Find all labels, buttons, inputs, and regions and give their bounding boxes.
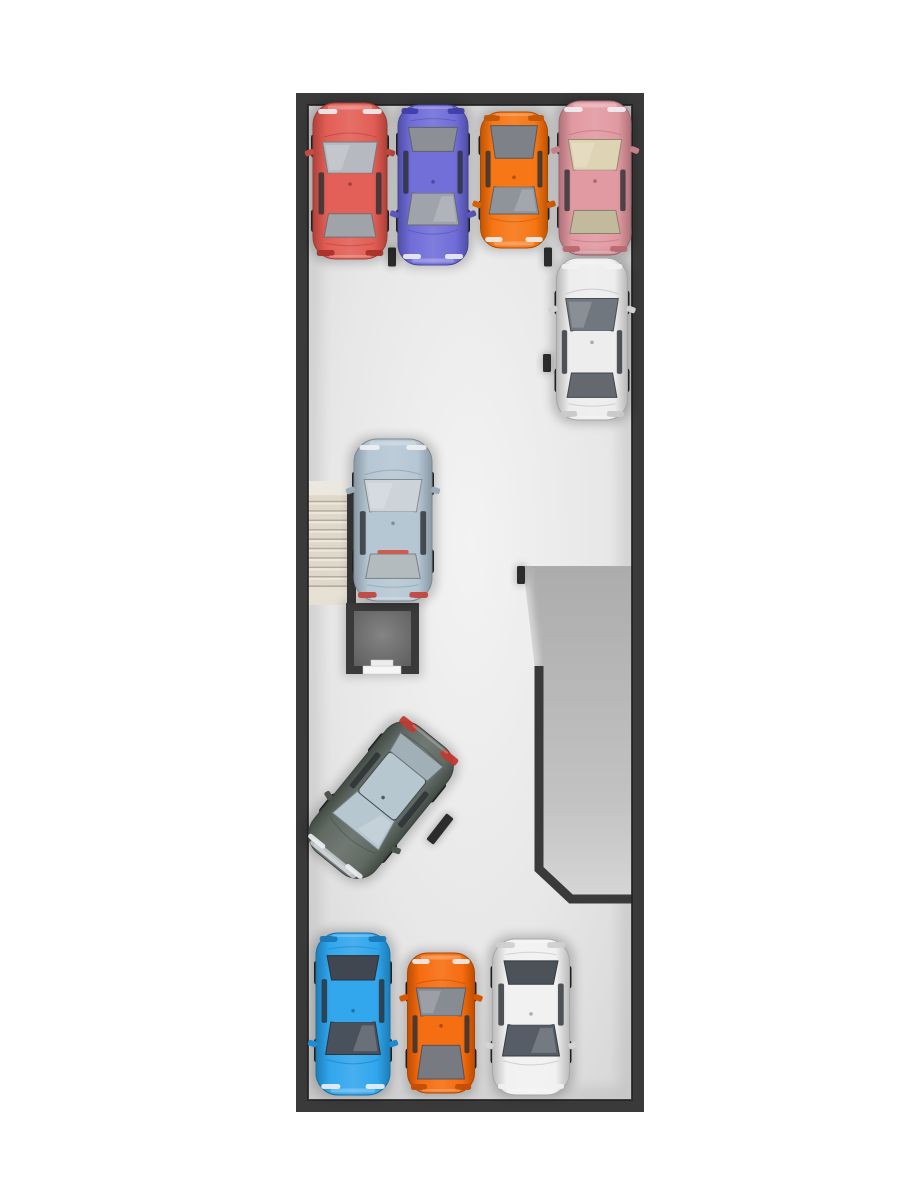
car-headlight-right bbox=[498, 1084, 518, 1089]
car-headlight-right bbox=[403, 254, 421, 259]
car-rear-window bbox=[418, 1045, 465, 1079]
car-headlight-left bbox=[561, 264, 579, 269]
car-antenna bbox=[351, 1009, 355, 1013]
elevator-door-step bbox=[371, 660, 393, 666]
elevator-wall-right bbox=[411, 603, 419, 674]
car-rear-sheen bbox=[575, 251, 615, 254]
car-side-glass-right bbox=[620, 170, 625, 212]
car-side-glass-left bbox=[558, 983, 564, 1025]
car-front-sheen bbox=[421, 956, 461, 960]
car-roof bbox=[412, 151, 454, 193]
wheel-stop-body bbox=[543, 354, 551, 372]
car-roof bbox=[573, 170, 616, 210]
stairs-texture bbox=[308, 481, 347, 605]
car-rear-sheen bbox=[422, 1089, 460, 1092]
car-headlight-left bbox=[359, 445, 379, 450]
car-sedan-pink bbox=[550, 98, 640, 259]
car-sedan-steelblue bbox=[345, 436, 441, 605]
car-side-glass-left bbox=[379, 979, 385, 1023]
car-headlight-left bbox=[412, 959, 429, 964]
car-front-sheen bbox=[328, 106, 372, 110]
elevator-wall-left bbox=[346, 603, 354, 674]
car-antenna bbox=[439, 1024, 443, 1028]
elevator-door-sill bbox=[363, 666, 401, 674]
car-rear-window bbox=[366, 554, 421, 578]
car-headlight-left bbox=[564, 107, 583, 112]
wheel-stop-body bbox=[517, 566, 525, 584]
car-roof bbox=[421, 1016, 461, 1045]
car-sedan-white-bottom bbox=[484, 935, 579, 1098]
car-side-glass-left bbox=[458, 151, 463, 194]
car-hatch-orange bbox=[399, 950, 484, 1097]
car-rear-sheen bbox=[413, 107, 452, 110]
car-front-sheen bbox=[508, 1089, 554, 1093]
car-antenna bbox=[590, 340, 594, 344]
car-headlight-left bbox=[544, 1084, 564, 1089]
car-side-glass-right bbox=[403, 151, 408, 194]
car-side-glass-left bbox=[360, 511, 366, 555]
car-rear-sheen bbox=[509, 941, 552, 944]
car-rear-sheen bbox=[572, 416, 612, 419]
car-headlight-right bbox=[452, 959, 469, 964]
car-side-glass-left bbox=[413, 1015, 418, 1053]
car-headlight-right bbox=[607, 107, 626, 112]
car-roof bbox=[328, 173, 372, 214]
car-front-sheen bbox=[331, 1089, 375, 1093]
car-headlight-left bbox=[318, 109, 337, 114]
car-brake-light-strip bbox=[377, 550, 408, 554]
car-rear-sheen bbox=[495, 114, 533, 117]
car-headlight-right bbox=[321, 1084, 340, 1089]
car-roof bbox=[331, 980, 375, 1022]
car-front-sheen bbox=[412, 259, 454, 263]
car-side-glass-left bbox=[564, 170, 569, 212]
car-roof bbox=[508, 984, 554, 1025]
car-side-glass-right bbox=[498, 983, 504, 1025]
car-antenna bbox=[529, 1012, 533, 1016]
render-canvas bbox=[0, 0, 900, 1200]
car-rear-window bbox=[567, 373, 617, 397]
car-roof bbox=[494, 158, 534, 187]
car-side-glass-left bbox=[319, 172, 325, 214]
car-side-glass-right bbox=[617, 330, 622, 374]
car-headlight-right bbox=[604, 264, 622, 269]
car-rear-window bbox=[327, 956, 379, 980]
wheel-stop-4 bbox=[516, 565, 526, 585]
car-side-glass-left bbox=[562, 330, 567, 374]
car-antenna bbox=[431, 180, 435, 184]
car-rear-window bbox=[491, 126, 538, 159]
car-coupe-azure bbox=[307, 929, 399, 1098]
elevator-wall-bottom-right bbox=[401, 666, 419, 674]
car-headlight-right bbox=[406, 445, 426, 450]
car-antenna bbox=[348, 182, 352, 186]
car-front-sheen bbox=[370, 442, 417, 446]
car-headlight-right bbox=[363, 109, 382, 114]
car-side-glass-left bbox=[537, 151, 542, 188]
wheel-stop-2 bbox=[543, 247, 553, 268]
car-side-glass-right bbox=[420, 511, 426, 555]
wheel-stop-body bbox=[544, 248, 552, 267]
car-headlight-left bbox=[445, 254, 463, 259]
car-rear-sheen bbox=[332, 935, 373, 938]
car-rear-window bbox=[504, 961, 558, 984]
car-side-glass-right bbox=[376, 172, 382, 214]
car-rear-sheen bbox=[329, 255, 370, 258]
car-headlight-left bbox=[366, 1084, 385, 1089]
elevator-wall-bottom-left bbox=[346, 666, 363, 674]
car-sedan-red bbox=[304, 100, 396, 263]
car-front-sheen bbox=[573, 104, 616, 108]
car-crossover-orange bbox=[472, 108, 557, 251]
car-antenna bbox=[391, 521, 395, 525]
car-side-glass-right bbox=[464, 1015, 469, 1053]
car-rear-window bbox=[570, 210, 620, 233]
car-side-glass-right bbox=[322, 979, 328, 1023]
car-rear-window bbox=[324, 214, 376, 237]
garage-floorplan-svg bbox=[0, 0, 900, 1200]
car-sedan-white-top bbox=[548, 255, 637, 424]
car-front-sheen bbox=[571, 261, 614, 265]
car-rear-sheen bbox=[371, 597, 415, 600]
car-roof bbox=[370, 512, 417, 554]
car-sedan-indigo bbox=[389, 101, 477, 268]
car-rear-window bbox=[409, 127, 458, 151]
car-front-sheen bbox=[494, 242, 534, 246]
car-roof bbox=[571, 331, 614, 373]
car-antenna bbox=[512, 175, 516, 179]
car-headlight-left bbox=[525, 237, 542, 242]
car-antenna bbox=[593, 179, 597, 183]
car-headlight-right bbox=[485, 237, 502, 242]
car-side-glass-right bbox=[486, 151, 491, 188]
wheel-stop-3 bbox=[542, 353, 552, 373]
